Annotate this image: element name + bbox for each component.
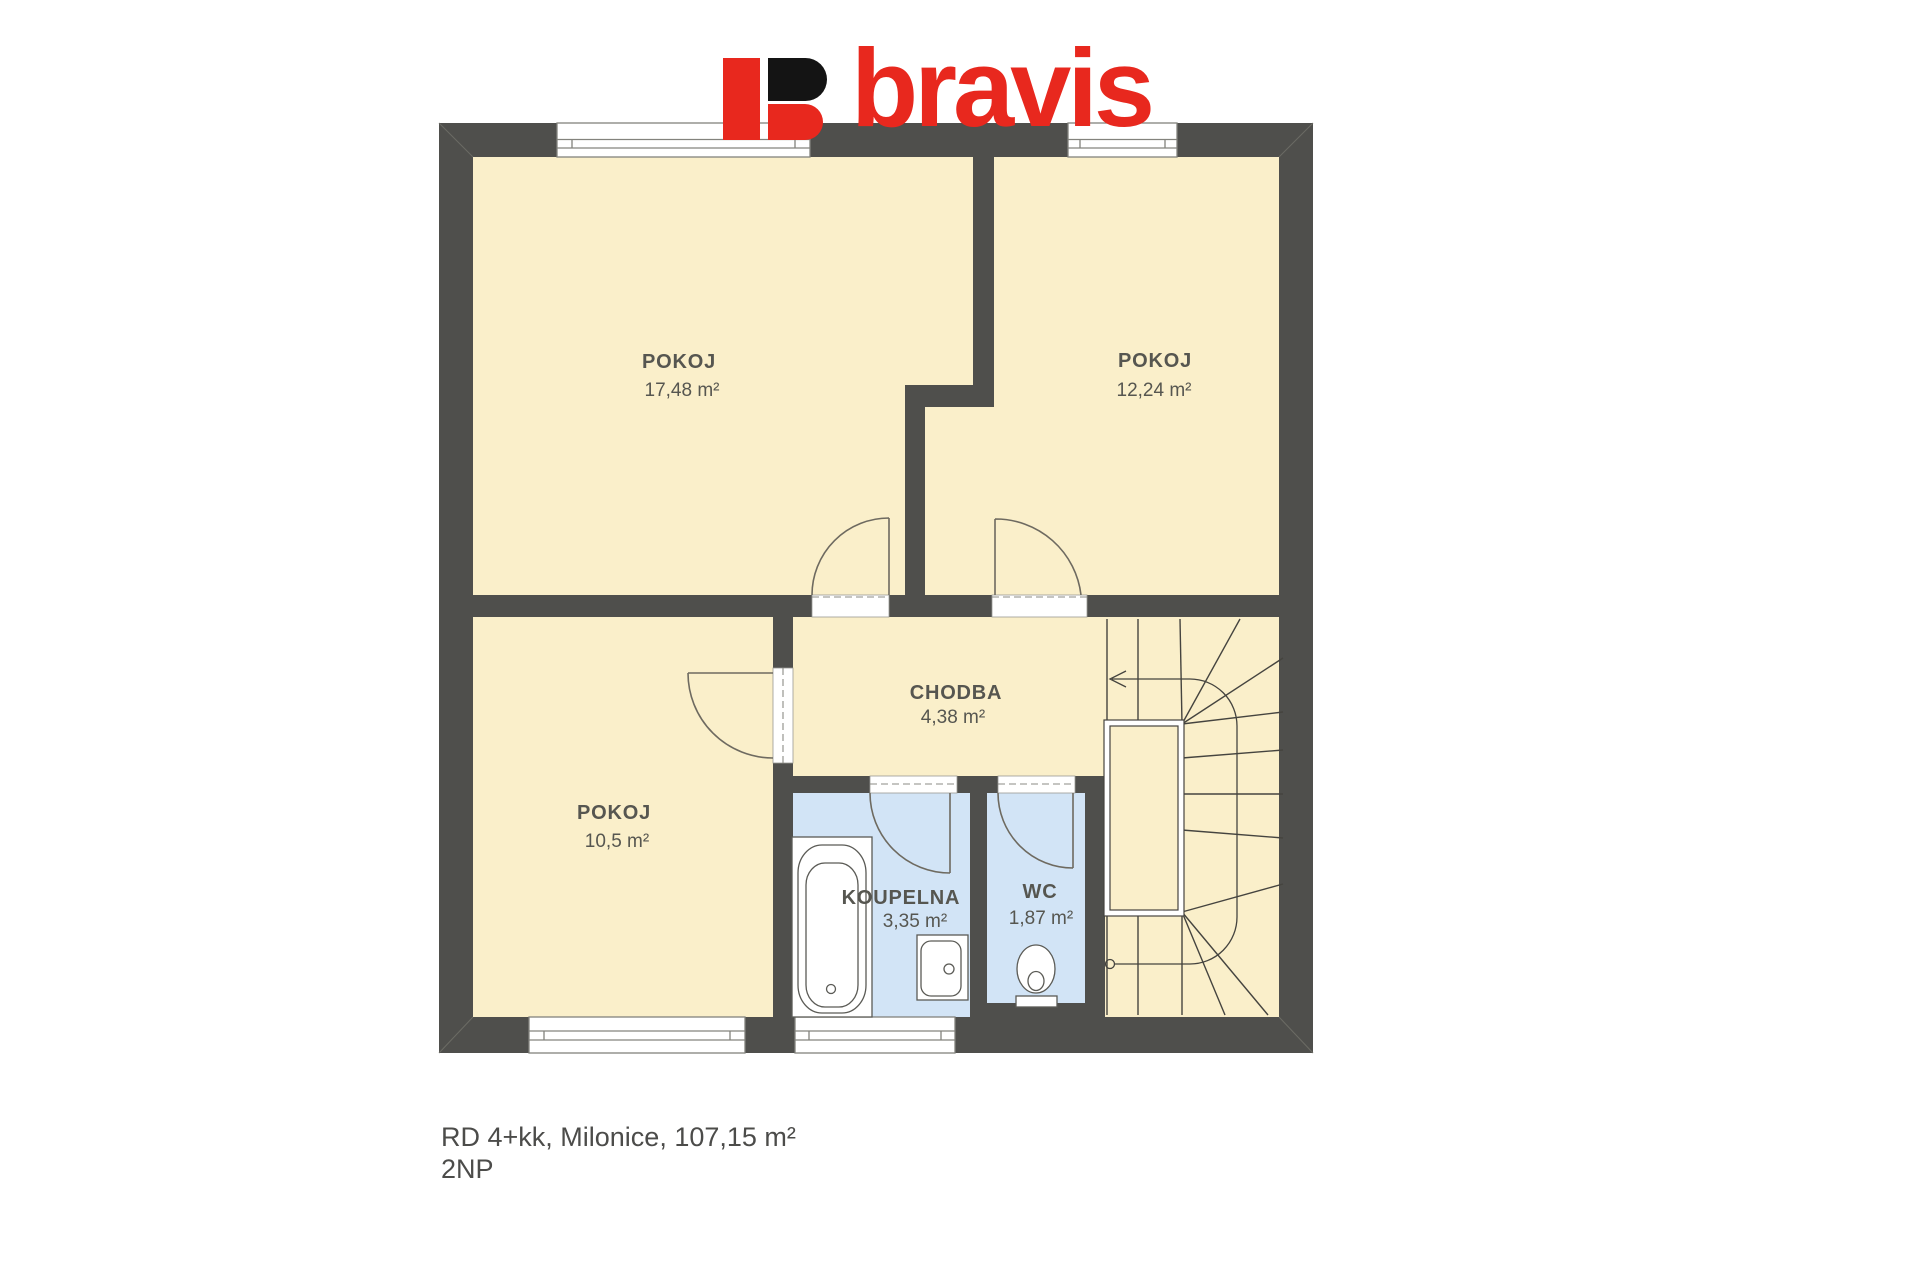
stair-landing-inner <box>1110 726 1178 910</box>
floor-plan: POKOJ 17,48 m² POKOJ 12,24 m² POKOJ 10,5… <box>0 0 1920 1276</box>
wc-name: WC <box>1023 881 1058 903</box>
logo-wordmark: bravis <box>851 34 1151 144</box>
bathroom-area: 3,35 m² <box>883 911 947 932</box>
door-opening-room1 <box>812 595 889 617</box>
logo-b-bowl-black <box>768 58 827 101</box>
wc-area: 1,87 m² <box>1009 908 1073 929</box>
hall-area: 4,38 m² <box>921 707 985 728</box>
wall-divider-jog <box>905 385 994 407</box>
wall-exterior-left <box>439 123 473 1053</box>
floor-plan-page: POKOJ 17,48 m² POKOJ 12,24 m² POKOJ 10,5… <box>0 0 1920 1276</box>
wall-divider-lower <box>905 407 925 595</box>
door-opening-room2 <box>992 595 1087 617</box>
logo-b-bar <box>723 58 760 140</box>
room1-area: 17,48 m² <box>645 380 720 401</box>
wall-bath-wc <box>970 793 987 1017</box>
caption-line2: 2NP <box>441 1154 796 1186</box>
hall-name: CHODBA <box>910 682 1003 704</box>
room3-name: POKOJ <box>577 802 651 824</box>
room2-area: 12,24 m² <box>1117 380 1192 401</box>
wall-wc-east <box>1085 776 1105 1017</box>
window-bottom-left <box>529 1017 745 1053</box>
sink <box>917 935 968 1000</box>
room3-area: 10,5 m² <box>585 831 649 852</box>
caption-line1: RD 4+kk, Milonice, 107,15 m² <box>441 1122 796 1154</box>
toilet <box>1016 945 1057 1007</box>
room1-name: POKOJ <box>642 351 716 373</box>
wall-divider-upper <box>973 157 994 385</box>
bathroom-name: KOUPELNA <box>842 887 961 909</box>
wall-exterior-right <box>1279 123 1313 1053</box>
plan-caption: RD 4+kk, Milonice, 107,15 m² 2NP <box>441 1122 796 1186</box>
logo-b-bowl-red <box>768 104 823 140</box>
room2-name: POKOJ <box>1118 350 1192 372</box>
bathtub <box>792 837 872 1017</box>
window-bathroom <box>795 1017 955 1053</box>
